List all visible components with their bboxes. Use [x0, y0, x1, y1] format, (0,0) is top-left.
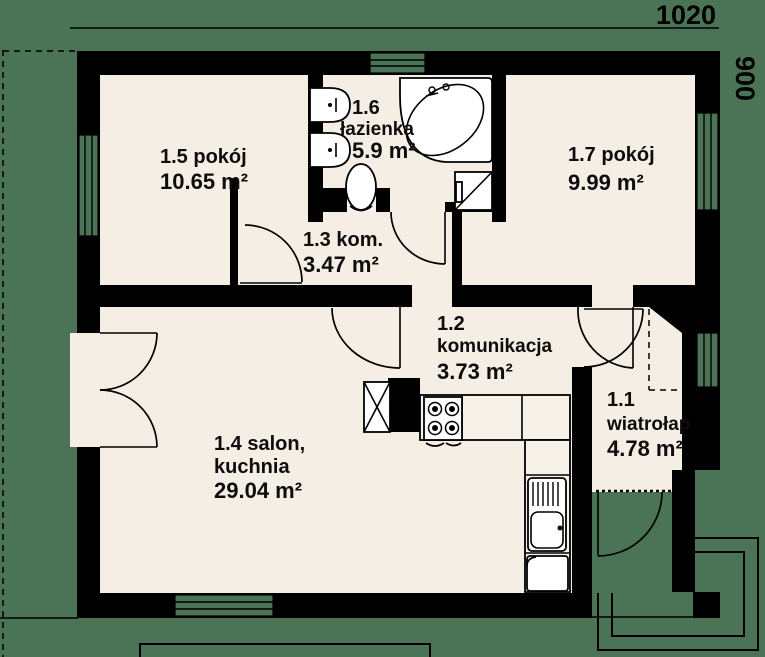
room-1-7-area: 9.99 m²	[568, 170, 644, 195]
wall-kitchen-stub	[388, 378, 420, 432]
room-1-2-name: komunikacja	[437, 336, 553, 357]
room-1-6-area: 5.9 m²	[352, 138, 416, 163]
room-1-1-name: wiatrołap	[606, 414, 690, 435]
fridge	[527, 556, 568, 591]
room-1-6-name: łazienka	[340, 119, 414, 140]
toilet	[346, 164, 376, 212]
room-1-5-name: 1.5 pokój	[160, 146, 247, 168]
wall-porch-left	[572, 470, 592, 618]
dimension-height-label: 900	[730, 56, 760, 101]
wall-wiatrolap-east	[682, 333, 695, 470]
window-wiatrolap-right	[697, 333, 718, 387]
wall-porch-right-jamb	[672, 470, 695, 592]
room-1-2-area: 3.73 m²	[437, 359, 513, 384]
wall-toilet-nook-right	[376, 188, 390, 212]
room-1-3-area: 3.47 m²	[303, 252, 379, 277]
window-room15-left	[79, 135, 98, 236]
room-label-1-7: 1.7 pokój 9.99 m²	[568, 144, 655, 195]
chimney-shaft	[364, 382, 390, 432]
window-salon-bottom	[175, 595, 273, 616]
wall-mid-horizontal-west	[100, 285, 412, 307]
window-bathroom-top	[370, 53, 425, 73]
room-1-1-area: 4.78 m²	[607, 436, 683, 461]
room-1-1-id: 1.1	[607, 389, 635, 411]
stove	[424, 397, 462, 446]
window-room17-right	[697, 113, 718, 210]
room-label-1-3: 1.3 kom. 3.47 m²	[303, 229, 383, 277]
dimension-width-label: 1020	[656, 0, 716, 30]
room-1-4-name-2: kuchnia	[214, 456, 290, 478]
wall-wiatrolap-west	[572, 367, 592, 470]
room-1-3-name: 1.3 kom.	[303, 229, 383, 251]
terrace-step-outline	[140, 644, 430, 657]
room-1-5-area: 10.65 m²	[160, 169, 248, 194]
kitchen-sink	[528, 478, 566, 551]
room-1-2-id: 1.2	[437, 313, 465, 335]
room-1-4-name-1: 1.4 salon,	[214, 433, 305, 455]
room-1-4-area: 29.04 m²	[214, 478, 302, 503]
floor-plan-canvas: 1020 900	[0, 0, 765, 657]
wall-bathroom-room17	[492, 75, 506, 222]
room-label-1-5: 1.5 pokój 10.65 m²	[160, 146, 248, 194]
wall-exterior-bottom	[77, 593, 592, 618]
shower-cabinet	[455, 172, 492, 210]
wall-corner-southeast	[693, 592, 720, 618]
washbasin-top	[310, 88, 350, 122]
room-1-7-name: 1.7 pokój	[568, 144, 655, 166]
wall-mid-horizontal-center	[452, 285, 592, 307]
wall-hall-left	[230, 178, 238, 285]
wall-hall-right	[452, 212, 462, 290]
wall-toilet-nook-left	[323, 188, 347, 212]
room-1-6-id: 1.6	[352, 97, 380, 119]
